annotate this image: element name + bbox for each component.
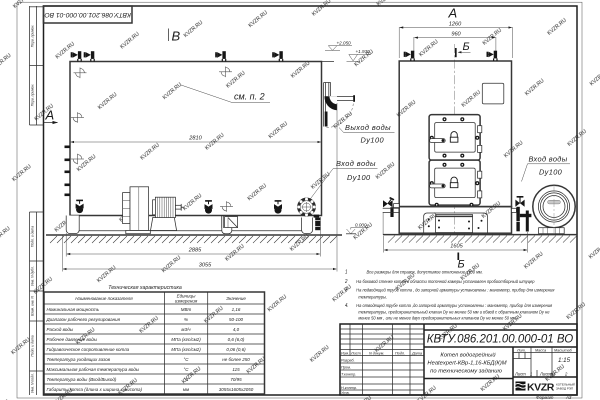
svg-text:2885: 2885	[188, 248, 202, 254]
svg-text:+2.050: +2.050	[337, 40, 352, 45]
svg-text:В: В	[172, 29, 181, 44]
svg-text:Dy100: Dy100	[347, 173, 371, 182]
svg-text:4.: 4.	[345, 303, 349, 309]
svg-text:Изм.: Изм.	[341, 351, 349, 355]
svg-text:°С: °С	[183, 377, 189, 382]
svg-text:Лит.: Лит.	[516, 349, 526, 353]
svg-text:Лист: Лист	[350, 351, 361, 355]
svg-text:Температура уходящих газов: Температура уходящих газов	[47, 357, 111, 362]
svg-text:Пров.: Пров.	[341, 366, 351, 370]
svg-text:мм: мм	[183, 387, 189, 392]
svg-text:Масса: Масса	[535, 349, 546, 353]
svg-text:°С: °С	[183, 367, 189, 372]
svg-text:Температура воды (Вход/Выход): Температура воды (Вход/Выход)	[47, 377, 117, 382]
svg-text:%: %	[184, 317, 188, 322]
svg-text:Выход воды: Выход воды	[345, 123, 391, 132]
svg-text:Габариты котла (длина х ширина: Габариты котла (длина х ширина х высота)	[47, 387, 143, 392]
svg-text:Значение: Значение	[226, 296, 246, 301]
svg-text:Вход воды: Вход воды	[529, 155, 568, 164]
svg-text:Все размеры для справок, допус: Все размеры для справок, допустимое откл…	[366, 269, 482, 274]
svg-text:4,0: 4,0	[233, 327, 240, 332]
svg-text:Инв. N дубл.: Инв. N дубл.	[31, 266, 35, 286]
svg-text:Утв.: Утв.	[341, 391, 350, 395]
svg-text:А: А	[45, 108, 55, 123]
svg-text:2: 2	[344, 279, 348, 285]
svg-text:115: 115	[232, 367, 240, 372]
svg-text:1,16: 1,16	[232, 307, 241, 312]
svg-text:МВт: МВт	[181, 307, 192, 312]
svg-text:ЗАВОД РЭП: ЗАВОД РЭП	[556, 387, 573, 391]
svg-text:Подп. и дата: Подп. и дата	[31, 335, 35, 356]
svg-text:Диапазон рабочего регулировани: Диапазон рабочего регулирования	[46, 317, 121, 322]
svg-text:70/95: 70/95	[230, 377, 242, 382]
svg-text:измерения: измерения	[175, 299, 198, 304]
svg-text:Максимальная рабочая температу: Максимальная рабочая температура воды	[47, 367, 140, 372]
svg-text:не более 250: не более 250	[222, 357, 250, 362]
svg-text:Лист: Лист	[514, 371, 526, 376]
svg-text:960: 960	[451, 31, 461, 37]
svg-text:°С: °С	[183, 357, 189, 362]
svg-text:Формат: Формат	[536, 395, 554, 400]
svg-text:Dy100: Dy100	[361, 136, 385, 145]
svg-text:Dy100: Dy100	[539, 168, 563, 177]
svg-text:Листов: Листов	[539, 371, 556, 376]
svg-text:0.000: 0.000	[355, 222, 367, 227]
svg-text:Heatexpert-КВр-1,16-КБД(К)М: Heatexpert-КВр-1,16-КБД(К)М	[427, 361, 506, 367]
svg-text:3055: 3055	[199, 263, 212, 269]
svg-text:1605: 1605	[450, 244, 463, 250]
svg-text:см. п. 2: см. п. 2	[234, 92, 265, 102]
svg-text:На боковой стенке котла в обла: На боковой стенке котла в области топочн…	[356, 279, 535, 284]
svg-text:м3/ч: м3/ч	[181, 327, 191, 332]
svg-text:КВТУ.086.201.00.000-01 ВО: КВТУ.086.201.00.000-01 ВО	[44, 11, 131, 18]
svg-text:температуры, предохранительны: температуры, предохранительный клапан Dу…	[358, 309, 550, 314]
svg-text:по техническому заданию: по техническому заданию	[430, 369, 502, 375]
svg-text:Перв. примен.: Перв. примен.	[31, 25, 35, 48]
svg-text:3: 3	[345, 287, 348, 293]
svg-text:2810: 2810	[188, 136, 202, 142]
svg-text:МПа (кгс/см2): МПа (кгс/см2)	[171, 347, 201, 352]
svg-text:50-100: 50-100	[229, 317, 244, 322]
svg-text:Б: Б	[463, 41, 470, 53]
svg-text:Расход воды: Расход воды	[47, 327, 74, 332]
svg-text:1:15: 1:15	[558, 357, 571, 364]
svg-text:Разраб.: Разраб.	[341, 359, 355, 363]
svg-text:На отводящей трубе котла ,до з: На отводящей трубе котла ,до запорной ар…	[356, 303, 553, 308]
svg-text:На подводящей трубе котла ,: На подводящей трубе котла , до запорной …	[356, 287, 555, 292]
svg-text:Номинальная мощность: Номинальная мощность	[47, 307, 100, 312]
svg-text:Подп.: Подп.	[395, 351, 405, 355]
svg-text:Взам. инв. N: Взам. инв. N	[31, 296, 35, 316]
svg-text:KVZR: KVZR	[527, 382, 555, 394]
svg-text:Масштаб: Масштаб	[554, 349, 573, 353]
svg-text:А3: А3	[565, 395, 572, 400]
svg-text:1: 1	[530, 371, 532, 376]
svg-text:Наименование показателя: Наименование показателя	[75, 296, 133, 301]
svg-text:0,06 (0,6): 0,06 (0,6)	[226, 347, 246, 352]
svg-text:Дата: Дата	[411, 351, 422, 355]
svg-text:А: А	[448, 6, 458, 21]
svg-text:менее 50 мм , или не менее дв: менее 50 мм , или не менее двух предохра…	[358, 315, 518, 320]
svg-text:Подп. и дата: Подп. и дата	[31, 226, 35, 247]
svg-text:Перв. примен.: Перв. примен.	[31, 84, 35, 107]
svg-text:Т.контр.: Т.контр.	[341, 373, 356, 377]
svg-text:Вход воды: Вход воды	[336, 159, 376, 168]
svg-text:3055х1605х2050: 3055х1605х2050	[219, 387, 254, 392]
svg-text:1260: 1260	[449, 21, 462, 27]
svg-text:Рабочее давление воды: Рабочее давление воды	[47, 337, 98, 342]
svg-text:Инв. N подл.: Инв. N подл.	[31, 373, 35, 393]
svg-text:1: 1	[345, 269, 348, 275]
svg-text:Н.контр.: Н.контр.	[341, 386, 357, 390]
svg-text:температуры.: температуры.	[358, 294, 387, 299]
svg-text:0,6 (6,0): 0,6 (6,0)	[228, 337, 245, 342]
svg-text:КВТУ.086.201.00.000-01 ВО: КВТУ.086.201.00.000-01 ВО	[427, 334, 574, 346]
svg-text:Гидравлическое сопротивление к: Гидравлическое сопротивление котла	[47, 347, 130, 352]
svg-text:N докум.: N докум.	[369, 351, 384, 355]
svg-text:Котел водогрейный: Котел водогрейный	[440, 352, 496, 359]
svg-text:+1.930: +1.930	[356, 49, 371, 54]
svg-text:Техническая характеристика: Техническая характеристика	[108, 285, 182, 291]
svg-text:МПа (кгс/см2): МПа (кгс/см2)	[171, 337, 201, 342]
